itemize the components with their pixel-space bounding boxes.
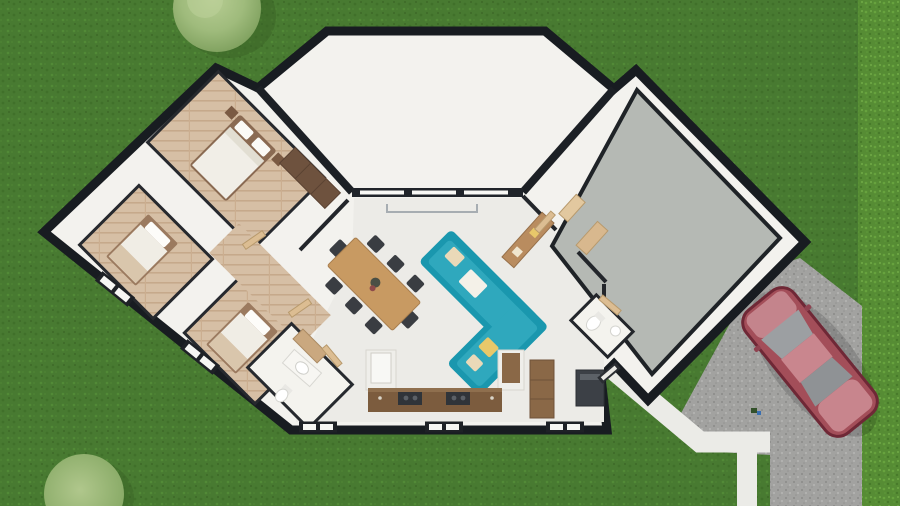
path-object-base: [751, 408, 757, 413]
path-object-blue: [757, 411, 761, 415]
hob-burner: [413, 396, 418, 401]
window-entry: [546, 422, 584, 433]
glass-door-pane: [464, 191, 508, 195]
hob-burner: [461, 396, 466, 401]
counter-edge: [368, 388, 502, 392]
hob-burner: [404, 396, 409, 401]
window-bathroom: [299, 422, 337, 433]
window-kitchen: [425, 422, 463, 433]
wood-cabinet-column: Wooden storage column: [530, 360, 554, 418]
floor-plan-render: Lawn Hedge Gravel driveway White walkway…: [0, 0, 900, 506]
hob-right: [446, 392, 470, 405]
counter-jar: [490, 396, 494, 400]
hob-left: [398, 392, 422, 405]
kitchen-counter: Kitchen counter with hobs: [368, 388, 502, 412]
window-pane: [320, 424, 333, 430]
window-pane: [429, 424, 442, 430]
appliance-vent: [580, 374, 600, 380]
window-pane: [303, 424, 316, 430]
window-pane: [446, 424, 459, 430]
tall-cabinet-wood: [502, 353, 520, 383]
glass-doors: Sliding glass doors to patio: [352, 188, 523, 197]
window-pane: [550, 424, 563, 430]
fridge-door: [371, 353, 391, 383]
glass-door-pane: [412, 191, 456, 195]
window-pane: [567, 424, 580, 430]
glass-door-pane: [360, 191, 404, 195]
hob-burner: [452, 396, 457, 401]
counter-jar: [378, 396, 382, 400]
walkway-branch: [737, 446, 757, 506]
